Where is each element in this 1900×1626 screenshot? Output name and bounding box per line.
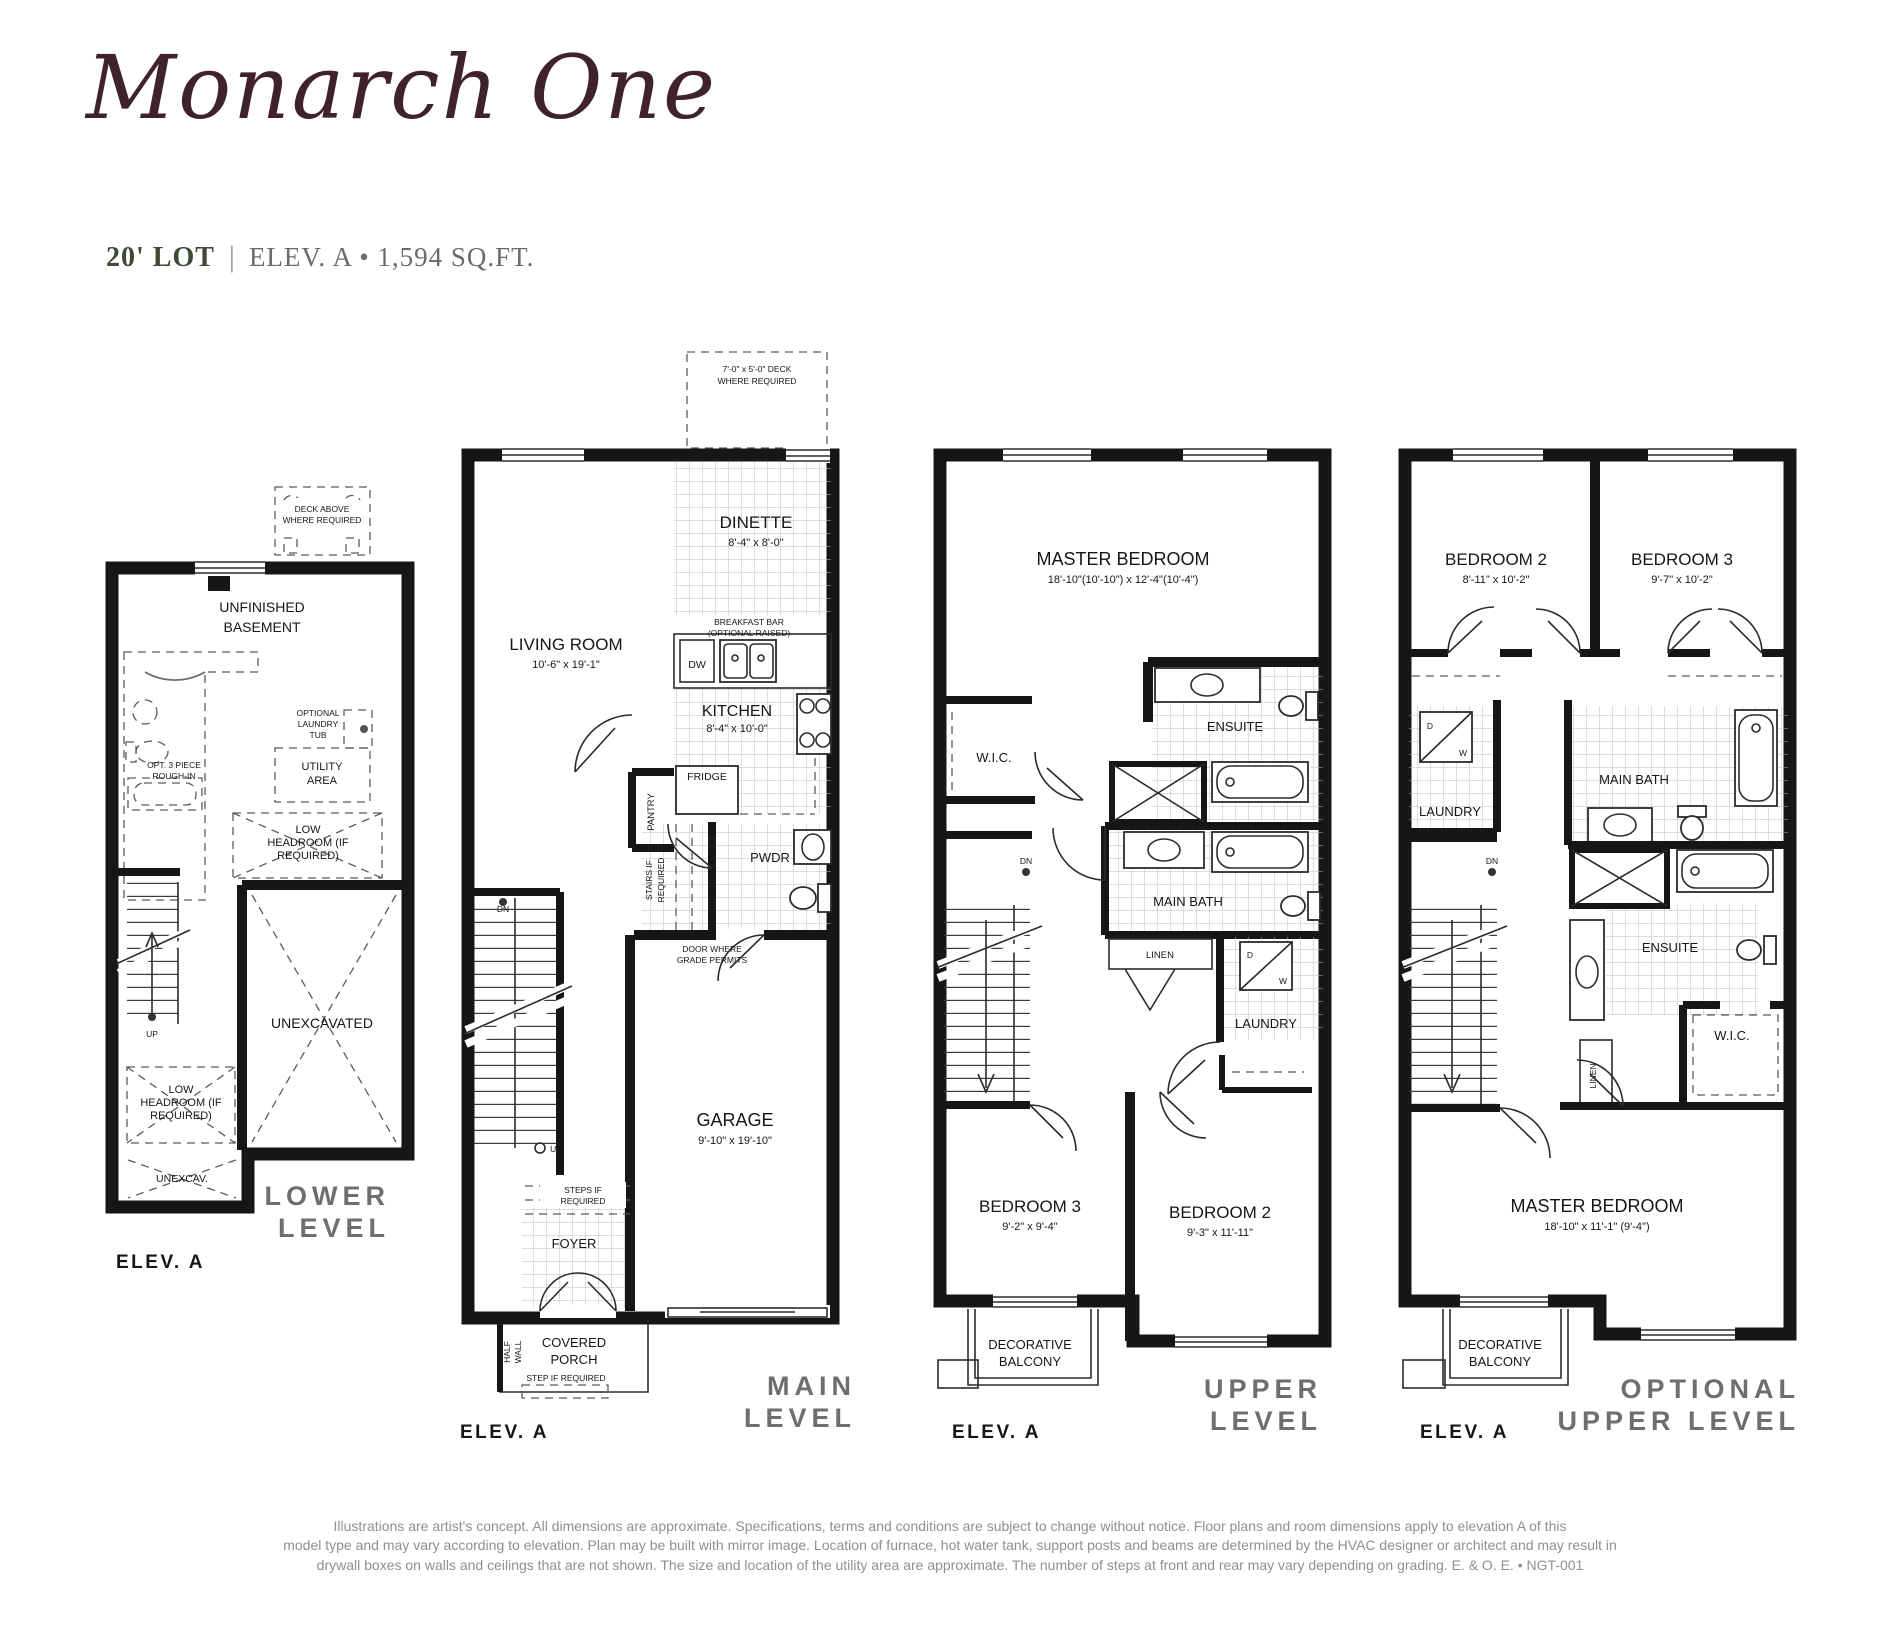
upper-laundry-label: LAUNDRY <box>1235 1016 1297 1031</box>
upper-laundry: D W LAUNDRY <box>1168 935 1323 1094</box>
opt-linen: LINEN <box>1580 1040 1612 1108</box>
low-headroom-u1: LOW <box>295 824 321 836</box>
plan-lower-level: DECK ABOVE WHERE REQUIRED UNFINISHED BAS… <box>112 487 408 1273</box>
upper-level-label-1: UPPER <box>1204 1374 1322 1404</box>
floorplans-svg: DECK ABOVE WHERE REQUIRED UNFINISHED BAS… <box>0 0 1900 1626</box>
opt-laundry: D W LAUNDRY <box>1405 700 1497 832</box>
opt-mainbath-label: MAIN BATH <box>1599 772 1669 787</box>
unfinished-basement-label-2: BASEMENT <box>223 619 300 635</box>
upper-washer-label: W <box>1279 976 1287 986</box>
garage-label: GARAGE <box>696 1110 773 1130</box>
opt-ensuite-label: ENSUITE <box>1642 940 1699 955</box>
rough-in-bath: OPT. 3 PIECE ROUGH-IN <box>124 652 258 900</box>
unexcavated-area: UNEXCAVATED <box>242 885 402 1150</box>
dishwasher-label: DW <box>688 659 706 671</box>
opt-ensuite-tub <box>1677 850 1773 892</box>
steps-if-label-2: REQUIRED <box>561 1196 606 1206</box>
utility-label-2: AREA <box>307 775 338 787</box>
upper-dn-label: DN <box>1020 856 1032 866</box>
main-level-label-2: LEVEL <box>744 1403 856 1433</box>
living-room-label: LIVING ROOM <box>509 635 622 654</box>
opt-main-bath: MAIN BATH <box>1568 700 1788 845</box>
upper-balcony: DECORATIVE BALCONY <box>938 1309 1098 1388</box>
lower-elev-label: ELEV. A <box>116 1252 205 1273</box>
breakfast-label-1: BREAKFAST BAR <box>714 617 784 627</box>
opt-bed2-dims: 8'-11" x 10'-2" <box>1463 574 1530 586</box>
up-label-main: UP <box>550 1144 562 1154</box>
dn-label: DN <box>497 904 509 914</box>
opt-elev-label: ELEV. A <box>1420 1422 1509 1443</box>
fridge: FRIDGE <box>676 766 738 814</box>
opt-wic-label: W.I.C. <box>1714 1028 1749 1043</box>
half-wall-label-1: HALF <box>502 1341 512 1363</box>
garage-dims: 9'-10" x 19'-10" <box>698 1135 772 1147</box>
upper-stairs: DN <box>936 835 1042 1105</box>
upper-linen-label: LINEN <box>1146 950 1174 961</box>
stairs-if-label-2: REQUIRED <box>656 858 666 903</box>
upper-mainbath-label: MAIN BATH <box>1153 894 1223 909</box>
opt-bed3-label: BEDROOM 3 <box>1631 550 1733 569</box>
opt-shower <box>1572 850 1667 906</box>
deck-label-2: WHERE REQUIRED <box>718 376 797 386</box>
lower-level-label-2: LEVEL <box>278 1213 390 1243</box>
pwdr-label: PWDR <box>750 850 790 865</box>
upper-bed2-dims: 9'-3" x 11'-11" <box>1187 1227 1253 1239</box>
deck-above-label-1: DECK ABOVE <box>295 504 350 514</box>
opt-bed3-dims: 9'-7" x 10'-2" <box>1651 574 1713 586</box>
steps-if-label-1: STEPS IF <box>564 1185 602 1195</box>
deck-above-outline: DECK ABOVE WHERE REQUIRED <box>275 487 370 555</box>
upper-ensuite-label: ENSUITE <box>1207 719 1264 734</box>
opt-laundry-label: LAUNDRY <box>1419 804 1481 819</box>
opt-ensuite: ENSUITE <box>1568 845 1790 1020</box>
upper-master-label: MASTER BEDROOM <box>1036 549 1209 569</box>
stove <box>797 694 831 754</box>
porch-label-2: PORCH <box>551 1352 598 1367</box>
upper-wic: W.I.C. <box>940 700 1083 800</box>
upper-balcony-label-1: DECORATIVE <box>988 1337 1072 1352</box>
utility-area: UTILITY AREA <box>275 748 370 802</box>
main-level-label-1: MAIN <box>767 1371 856 1401</box>
unfinished-basement-label-1: UNFINISHED <box>219 599 305 615</box>
low-headroom-l1: LOW <box>168 1084 194 1096</box>
rough-in-label-2: ROUGH-IN <box>153 771 196 781</box>
porch-label-1: COVERED <box>542 1335 606 1350</box>
disclaimer-line-3: drywall boxes on walls and ceilings that… <box>0 1556 1900 1575</box>
pantry-label: PANTRY <box>646 793 657 831</box>
upper-mainbath-tub <box>1212 832 1308 872</box>
unexcav-label: UNEXCAV. <box>156 1173 208 1185</box>
upper-bed3-dims: 9'-2" x 9'-4" <box>1002 1221 1058 1233</box>
opt-bed2-label: BEDROOM 2 <box>1445 550 1547 569</box>
unexcavated-label: UNEXCAVATED <box>271 1015 373 1031</box>
opt-dryer-label: D <box>1427 721 1433 731</box>
plan-upper-level: MASTER BEDROOM 18'-10"(10'-10") x 12'-4"… <box>936 446 1325 1443</box>
upper-bed2-label: BEDROOM 2 <box>1169 1203 1271 1222</box>
opt-master-dims: 18'-10" x 11'-1" (9'-4") <box>1544 1221 1649 1233</box>
stairs-if-label-1: STAIRS IF <box>644 860 654 900</box>
fridge-label: FRIDGE <box>687 771 727 783</box>
low-headroom-l3: REQUIRED) <box>150 1110 212 1122</box>
main-elev-label: ELEV. A <box>460 1422 549 1443</box>
opt-balcony-label-1: DECORATIVE <box>1458 1337 1542 1352</box>
low-headroom-l2: HEADROOM (IF <box>140 1097 222 1109</box>
opt-mainbath-tub <box>1735 710 1777 806</box>
garage: GARAGE 9'-10" x 19'-10" <box>630 935 774 1311</box>
kitchen-label: KITCHEN <box>702 703 772 720</box>
upper-elev-label: ELEV. A <box>952 1422 1041 1443</box>
unexcav-porch: UNEXCAV. <box>128 1160 236 1198</box>
low-headroom-lower: LOW HEADROOM (IF REQUIRED) <box>127 1067 235 1143</box>
laundry-tub-label-3: TUB <box>310 730 327 740</box>
deck-label-1: 7'-0" x 5'-0" DECK <box>723 364 792 374</box>
opt-master-label: MASTER BEDROOM <box>1510 1196 1683 1216</box>
lower-level-label-1: LOWER <box>265 1181 391 1211</box>
floorplan-page: Monarch One 20' LOT | ELEV. A • 1,594 SQ… <box>0 0 1900 1626</box>
kitchen-dims: 8'-4" x 10'-0" <box>706 723 768 735</box>
upper-ensuite-tub <box>1212 762 1308 802</box>
upper-master-dims: 18'-10"(10'-10") x 12'-4"(10'-4") <box>1048 574 1199 586</box>
dinette-dims: 8'-4" x 8'-0" <box>728 537 784 549</box>
rough-in-label-1: OPT. 3 PIECE <box>147 760 201 770</box>
upper-balcony-label-2: BALCONY <box>999 1354 1061 1369</box>
covered-porch: HALF WALL COVERED PORCH STEP IF REQUIRED <box>500 1318 648 1398</box>
laundry-tub-label-2: LAUNDRY <box>298 719 339 729</box>
opt-washer-label: W <box>1459 748 1467 758</box>
up-label: UP <box>146 1029 158 1039</box>
disclaimer: Illustrations are artist's concept. All … <box>0 1517 1900 1575</box>
laundry-tub-label-1: OPTIONAL <box>297 708 340 718</box>
foyer-label: FOYER <box>552 1236 597 1251</box>
upper-main-bath: MAIN BATH <box>1053 826 1325 935</box>
door-grade-label-1: DOOR WHERE <box>682 944 742 954</box>
step-if-label: STEP IF REQUIRED <box>526 1373 605 1383</box>
opt-balcony: DECORATIVE BALCONY <box>1403 1309 1568 1388</box>
breakfast-bar: BREAKFAST BAR (OPTIONAL RAISED) DW <box>674 617 831 688</box>
opt-level-label-2: UPPER LEVEL <box>1557 1406 1800 1436</box>
opt-stairs: DN <box>1401 838 1507 1105</box>
plan-main-level: 7'-0" x 5'-0" DECK WHERE REQUIRED DINETT… <box>460 352 856 1443</box>
upper-ensuite: ENSUITE <box>1112 662 1325 822</box>
opt-dn-label: DN <box>1486 856 1498 866</box>
main-deck-outline: 7'-0" x 5'-0" DECK WHERE REQUIRED <box>687 352 827 448</box>
upper-dryer-label: D <box>1247 950 1253 960</box>
main-stairs: DN UP <box>464 892 572 1175</box>
low-headroom-upper: LOW HEADROOM (IF REQUIRED) <box>233 813 382 878</box>
upper-level-label-2: LEVEL <box>1210 1406 1322 1436</box>
door-grade-label-2: GRADE PERMITS <box>677 955 748 965</box>
plan-optional-upper-level: BEDROOM 2 8'-11" x 10'-2" BEDROOM 3 9'-7… <box>1401 446 1800 1443</box>
utility-label-1: UTILITY <box>302 761 344 773</box>
upper-linen: LINEN <box>1109 939 1212 1010</box>
opt-level-label-1: OPTIONAL <box>1621 1374 1801 1404</box>
upper-bed3-label: BEDROOM 3 <box>979 1197 1081 1216</box>
low-headroom-u3: REQUIRED) <box>277 850 339 862</box>
upper-wic-label: W.I.C. <box>976 750 1011 765</box>
low-headroom-u2: HEADROOM (IF <box>267 837 349 849</box>
breakfast-label-2: (OPTIONAL RAISED) <box>708 628 791 638</box>
disclaimer-line-2: model type and may vary according to ele… <box>0 1536 1900 1555</box>
deck-above-label-2: WHERE REQUIRED <box>283 515 362 525</box>
half-wall-label-2: WALL <box>513 1340 523 1363</box>
laundry-tub: OPTIONAL LAUNDRY TUB <box>297 708 372 748</box>
disclaimer-line-1: Illustrations are artist's concept. All … <box>0 1517 1900 1536</box>
opt-balcony-label-2: BALCONY <box>1469 1354 1531 1369</box>
living-room-dims: 10'-6" x 19'-1" <box>532 659 600 671</box>
dinette-label: DINETTE <box>720 513 793 532</box>
